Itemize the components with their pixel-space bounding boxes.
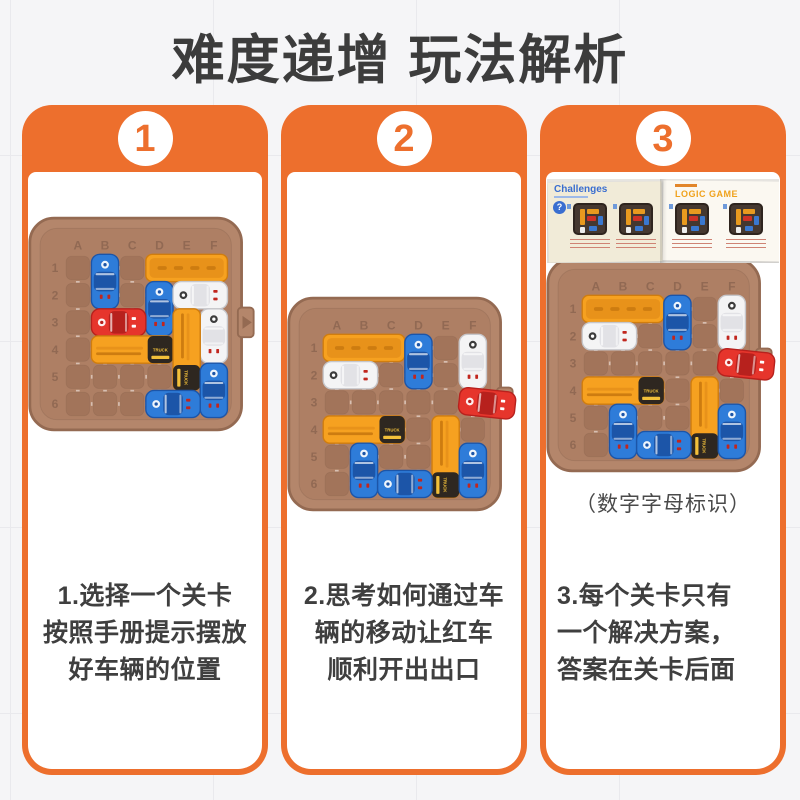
toy-truck: TRUCK	[691, 377, 718, 459]
thumbnail-caption-lines	[672, 239, 712, 250]
svg-text:6: 6	[52, 397, 59, 411]
thumbnail-piece	[736, 209, 741, 225]
step-3-board-photo: ABCDEF123456TRUCKTRUCK	[546, 257, 780, 473]
booklet-fold	[660, 179, 667, 263]
thumbnail-piece	[691, 226, 699, 231]
svg-text:1: 1	[570, 302, 577, 316]
svg-text:C: C	[128, 239, 137, 253]
step-2-description-line-2: 辆的移动让红车	[287, 615, 521, 652]
svg-text:E: E	[701, 280, 709, 294]
toy-blue-car	[146, 282, 173, 336]
puzzle-board: ABCDEF123456TRUCKTRUCK	[28, 216, 262, 432]
thumbnail-caption-lines	[570, 239, 610, 250]
toy-blue-car	[91, 254, 118, 308]
thumbnail-caption-lines	[616, 239, 656, 250]
svg-text:B: B	[101, 239, 110, 253]
step-1-description: 1.选择一个关卡 按照手册提示摆放 好车辆的位置	[28, 578, 262, 689]
svg-text:6: 6	[570, 438, 577, 452]
thumbnail-piece	[745, 226, 753, 231]
toy-blue-car	[664, 295, 691, 349]
puzzle-thumbnail	[729, 203, 763, 235]
toy-truck: TRUCK	[323, 416, 405, 443]
challenge-booklet-photo: Challenges ? LOGIC GAME	[547, 179, 779, 263]
svg-text:3: 3	[52, 316, 59, 330]
svg-text:B: B	[619, 280, 628, 294]
thumbnail-piece	[743, 216, 752, 221]
svg-text:5: 5	[311, 450, 318, 464]
svg-text:F: F	[469, 319, 476, 333]
puzzle-board: ABCDEF123456TRUCKTRUCK	[546, 257, 780, 473]
thumbnail-piece	[626, 209, 631, 225]
thumbnail-piece	[635, 226, 643, 231]
svg-text:E: E	[183, 239, 191, 253]
step-3-description-line-3: 答案在关卡后面	[557, 652, 780, 689]
step-3-body: Challenges ? LOGIC GAME ABCDEF123456TRUC…	[546, 172, 780, 769]
thumbnail-piece	[743, 209, 755, 214]
step-1-body: ABCDEF123456TRUCKTRUCK 1.选择一个关卡 按照手册提示摆放…	[28, 172, 262, 769]
step-2-number-badge: 2	[377, 111, 432, 166]
step-2-description: 2.思考如何通过车 辆的移动让红车 顺利开出出口	[287, 578, 521, 689]
toy-red-car	[458, 387, 517, 420]
thumbnail-piece	[633, 209, 645, 214]
toy-blue-car	[378, 470, 432, 497]
product-infographic: { "page": { "title": "难度递增 玩法解析", "accen…	[0, 0, 800, 800]
step-2-number: 2	[393, 120, 414, 158]
step-2-header: 2	[281, 105, 527, 172]
step-1-header: 1	[22, 105, 268, 172]
thumbnail-piece	[633, 216, 642, 221]
step-3-header: 3	[540, 105, 786, 172]
step-card-2: 2 ABCDEF123456TRUCKTRUCK 2.思考如何通过车 辆的移动让…	[281, 105, 527, 775]
step-3-number: 3	[652, 120, 673, 158]
step-1-description-line-2: 按照手册提示摆放	[28, 615, 262, 652]
svg-text:TRUCK: TRUCK	[443, 477, 448, 493]
toy-blue-car	[609, 404, 636, 458]
thumbnail-piece	[589, 226, 597, 231]
thumbnail-piece	[644, 216, 649, 225]
svg-text:TRUCK: TRUCK	[385, 428, 401, 433]
svg-text:D: D	[673, 280, 682, 294]
toy-police-car	[459, 334, 486, 388]
toy-truck: TRUCK	[173, 309, 200, 391]
toy-truck: TRUCK	[91, 336, 173, 363]
toy-cargo-truck	[323, 334, 405, 361]
toy-cargo-truck	[582, 295, 664, 322]
thumbnail-number-mark	[567, 204, 571, 209]
svg-text:D: D	[155, 239, 164, 253]
thumbnail-piece	[580, 209, 585, 225]
svg-text:E: E	[442, 319, 450, 333]
svg-text:A: A	[73, 239, 82, 253]
step-2-board-photo: ABCDEF123456TRUCKTRUCK	[287, 296, 521, 512]
puzzle-thumbnail	[619, 203, 653, 235]
puzzle-thumbnail	[675, 203, 709, 235]
svg-text:TRUCK: TRUCK	[702, 438, 707, 454]
thumbnail-piece	[754, 216, 759, 225]
step-3-description-line-1: 3.每个关卡只有	[557, 578, 780, 615]
thumbnail-piece	[700, 216, 705, 225]
thumbnail-piece	[587, 216, 596, 221]
svg-text:TRUCK: TRUCK	[644, 389, 660, 394]
step-3-description: 3.每个关卡只有 一个解决方案， 答案在关卡后面	[546, 578, 780, 689]
booklet-right-title: LOGIC GAME	[675, 189, 738, 199]
thumbnail-number-mark	[613, 204, 617, 209]
step-2-description-line-1: 2.思考如何通过车	[287, 578, 521, 615]
svg-text:2: 2	[311, 368, 318, 382]
step-card-3: 3 Challenges ? LOGIC GAME	[540, 105, 786, 775]
booklet-left-title: Challenges	[554, 184, 607, 195]
svg-text:2: 2	[570, 329, 577, 343]
toy-blue-car	[350, 443, 377, 497]
toy-red-car	[717, 348, 776, 381]
thumbnail-piece	[626, 227, 631, 233]
step-3-description-line-2: 一个解决方案，	[557, 615, 780, 652]
toy-police-car	[582, 323, 636, 350]
thumbnail-caption-lines	[726, 239, 766, 250]
booklet-right-subtitle-line	[675, 184, 697, 187]
svg-text:2: 2	[52, 288, 59, 302]
thumbnail-number-mark	[723, 204, 727, 209]
svg-text:D: D	[414, 319, 423, 333]
svg-text:5: 5	[570, 411, 577, 425]
step-2-description-line-3: 顺利开出出口	[287, 652, 521, 689]
toy-blue-car	[200, 363, 227, 417]
toy-cargo-truck	[146, 254, 228, 281]
thumbnail-piece	[682, 227, 687, 233]
svg-text:C: C	[646, 280, 655, 294]
toy-truck: TRUCK	[432, 416, 459, 498]
step-1-description-line-3: 好车辆的位置	[28, 652, 262, 689]
svg-text:1: 1	[52, 261, 59, 275]
svg-text:3: 3	[570, 357, 577, 371]
toy-blue-car	[718, 404, 745, 458]
svg-text:TRUCK: TRUCK	[184, 370, 189, 386]
toy-police-car	[173, 282, 227, 309]
svg-text:6: 6	[311, 477, 318, 491]
toy-blue-car	[459, 443, 486, 497]
steps-row: 1 ABCDEF123456TRUCKTRUCK 1.选择一个关卡 按照手册提示…	[0, 105, 800, 775]
svg-text:1: 1	[311, 341, 318, 355]
thumbnail-piece	[682, 209, 687, 225]
toy-blue-car	[405, 334, 432, 388]
svg-text:4: 4	[311, 423, 318, 437]
step-1-description-line-1: 1.选择一个关卡	[28, 578, 262, 615]
thumbnail-piece	[689, 209, 701, 214]
svg-text:3: 3	[311, 396, 318, 410]
step-3-number-badge: 3	[636, 111, 691, 166]
puzzle-board: ABCDEF123456TRUCKTRUCK	[287, 296, 521, 512]
thumbnail-number-mark	[669, 204, 673, 209]
svg-text:F: F	[210, 239, 217, 253]
toy-police-car	[200, 309, 227, 363]
toy-red-car	[91, 309, 145, 336]
step-1-board-photo: ABCDEF123456TRUCKTRUCK	[28, 216, 262, 432]
step-card-1: 1 ABCDEF123456TRUCKTRUCK 1.选择一个关卡 按照手册提示…	[22, 105, 268, 775]
svg-text:4: 4	[52, 343, 59, 357]
board-caption: （数字字母标识）	[546, 488, 780, 518]
toy-blue-car	[637, 431, 691, 458]
toy-truck: TRUCK	[582, 377, 664, 404]
step-1-number-badge: 1	[118, 111, 173, 166]
toy-police-car	[323, 362, 377, 389]
thumbnail-piece	[587, 209, 599, 214]
svg-text:C: C	[387, 319, 396, 333]
toy-police-car	[718, 295, 745, 349]
page-title: 难度递增 玩法解析	[0, 0, 800, 94]
thumbnail-piece	[580, 227, 585, 233]
step-2-body: ABCDEF123456TRUCKTRUCK 2.思考如何通过车 辆的移动让红车…	[287, 172, 521, 769]
svg-text:4: 4	[570, 384, 577, 398]
svg-text:B: B	[360, 319, 369, 333]
svg-text:TRUCK: TRUCK	[153, 348, 169, 353]
booklet-left-subtitle-line	[554, 196, 588, 198]
thumbnail-piece	[598, 216, 603, 225]
svg-text:A: A	[332, 319, 341, 333]
svg-text:F: F	[728, 280, 735, 294]
question-mark-icon: ?	[553, 201, 566, 214]
toy-blue-car	[146, 390, 200, 417]
svg-text:A: A	[591, 280, 600, 294]
thumbnail-piece	[736, 227, 741, 233]
step-1-number: 1	[134, 120, 155, 158]
svg-text:5: 5	[52, 370, 59, 384]
puzzle-thumbnail	[573, 203, 607, 235]
thumbnail-piece	[689, 216, 698, 221]
